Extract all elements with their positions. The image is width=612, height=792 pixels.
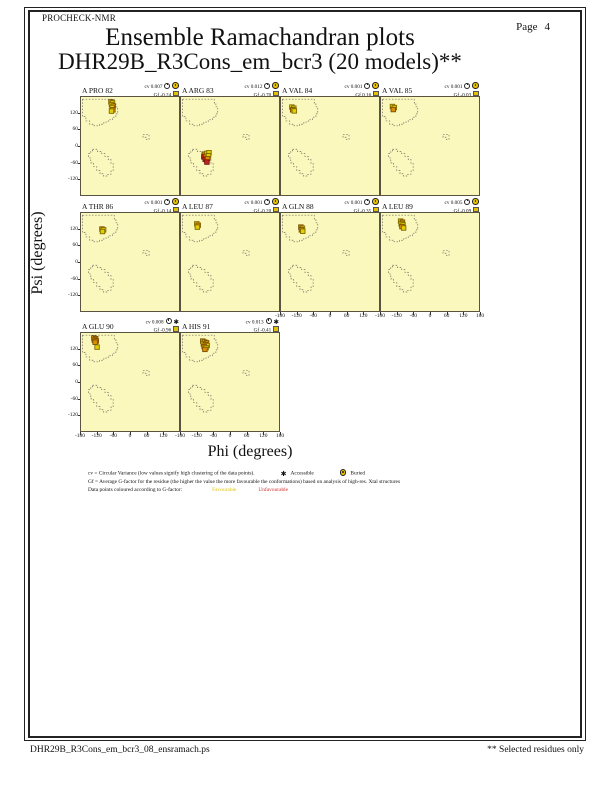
legend-colour-text: Data points coloured according to G-fact… [88, 487, 182, 493]
residue-label: A GLU 90 [82, 322, 114, 331]
dial-icon [364, 199, 370, 205]
plot-area [80, 96, 180, 196]
y-tick-label: 60 [62, 242, 78, 248]
ramachandran-plot: A VAL 84 cv 0.001 Gf 0.16 [280, 82, 380, 196]
gfactor-square-icon [273, 326, 279, 332]
cv-stat: cv 0.001 [245, 198, 279, 207]
accessibility-icon [274, 320, 279, 325]
cv-stat: cv 0.001 [345, 198, 379, 207]
y-tick-label: -60 [62, 276, 78, 282]
y-tick-label: 120 [62, 110, 78, 116]
plot-header: A GLN 88 cv 0.001 Gf -0.35 [280, 198, 380, 212]
dial-icon [164, 199, 170, 205]
ramachandran-plot: A LEU 89 cv 0.005 Gf -0.09 -180-120-6006… [380, 198, 480, 312]
legend-unfavourable-label: Unfavourable [258, 487, 288, 493]
residue-label: A ARG 83 [182, 86, 214, 95]
y-tick-label: -120 [62, 292, 78, 298]
residue-label: A LEU 87 [182, 202, 213, 211]
app-name: PROCHECK-NMR [42, 13, 116, 23]
residue-label: A PRO 82 [82, 86, 113, 95]
ramachandran-plot: A HIS 91 cv 0.013 Gf -0.41 -180-120-6006… [180, 318, 280, 432]
data-point [205, 160, 210, 165]
accessibility-icon [172, 82, 179, 89]
legend-favourable-label: Favourable [212, 487, 236, 493]
plot-header: A VAL 85 cv 0.001 Gf -0.03 [380, 82, 480, 96]
residue-label: A HIS 91 [182, 322, 210, 331]
plot-header: A PRO 82 cv 0.007 Gf -0.24 [80, 82, 180, 96]
y-tick-label: 120 [62, 346, 78, 352]
plot-area [180, 212, 280, 312]
ramachandran-plot: A PRO 82 cv 0.007 Gf -0.24 120600-60-120 [80, 82, 180, 196]
legend: cv = Circular Variance (low values signi… [88, 469, 508, 494]
legend-buried-label: Buried [350, 471, 365, 477]
y-tick-mark [78, 129, 81, 130]
residue-label: A LEU 89 [382, 202, 413, 211]
data-point [109, 109, 114, 114]
residue-label: A VAL 84 [282, 86, 312, 95]
y-tick-mark [78, 163, 81, 164]
accessibility-icon [472, 198, 479, 205]
dial-icon [464, 83, 470, 89]
plot-area [180, 332, 280, 432]
plot-area [80, 332, 180, 432]
x-axis-label: Phi (degrees) [208, 443, 293, 461]
accessibility-icon [174, 320, 179, 325]
data-point [292, 109, 297, 114]
y-tick-mark [78, 295, 81, 296]
ramachandran-plot: A VAL 85 cv 0.001 Gf -0.03 [380, 82, 480, 196]
plot-header: A GLU 90 cv 0.008 Gf -0.96 [80, 318, 180, 332]
gfactor-square-icon [173, 326, 179, 332]
x-tick-mark [197, 432, 198, 435]
cv-stat: cv 0.007 [145, 82, 179, 91]
y-tick-label: 0 [62, 143, 78, 149]
buried-circle-icon [340, 469, 347, 476]
x-tick-mark [247, 432, 248, 435]
y-tick-label: 60 [62, 126, 78, 132]
dial-icon [166, 318, 172, 324]
y-tick-mark [78, 415, 81, 416]
accessibility-icon [472, 82, 479, 89]
legend-accessible-label: Accessible [290, 471, 313, 477]
data-point [391, 107, 396, 112]
x-tick-mark [280, 312, 281, 315]
y-tick-label: 0 [62, 259, 78, 265]
dial-icon [264, 83, 270, 89]
page-number: Page4 [516, 21, 550, 33]
footer-note: ** Selected residues only [487, 745, 584, 755]
y-tick-mark [78, 349, 81, 350]
cv-stat: cv 0.012 [245, 82, 279, 91]
plot-header: A THR 86 cv 0.001 Gf -0.14 [80, 198, 180, 212]
x-tick-mark [147, 432, 148, 435]
x-tick-mark [80, 432, 81, 435]
x-tick-mark [347, 312, 348, 315]
x-tick-mark [163, 432, 164, 435]
plot-area [80, 212, 180, 312]
y-tick-label: -60 [62, 160, 78, 166]
ramachandran-plot: A LEU 87 cv 0.001 Gf -0.20 [180, 198, 280, 312]
y-tick-mark [78, 146, 81, 147]
legend-cv-text: cv = Circular Variance (low values signi… [88, 471, 255, 477]
x-tick-mark [97, 432, 98, 435]
x-tick-mark [130, 432, 131, 435]
dial-icon [264, 199, 270, 205]
data-point [401, 226, 406, 231]
x-tick-mark [413, 312, 414, 315]
x-tick-mark [113, 432, 114, 435]
plot-area [380, 96, 480, 196]
footer-filename: DHR29B_R3Cons_em_bcr3_08_ensramach.ps [30, 745, 210, 755]
residue-label: A THR 86 [82, 202, 113, 211]
x-tick-mark [263, 432, 264, 435]
x-tick-mark [447, 312, 448, 315]
y-tick-mark [78, 113, 81, 114]
x-tick-mark [280, 432, 281, 435]
dial-icon [464, 199, 470, 205]
cv-stat: cv 0.001 [445, 82, 479, 91]
cv-stat: cv 0.008 [146, 318, 179, 326]
y-tick-label: 60 [62, 362, 78, 368]
y-tick-mark [78, 179, 81, 180]
accessibility-icon [272, 198, 279, 205]
y-tick-mark [78, 262, 81, 263]
data-point [93, 340, 98, 345]
legend-gf-row: Gf = Average G-factor for the residue (t… [88, 478, 508, 486]
residue-label: A VAL 85 [382, 86, 412, 95]
x-tick-mark [313, 312, 314, 315]
y-tick-label: 120 [62, 226, 78, 232]
y-tick-mark [78, 279, 81, 280]
accessibility-icon [372, 82, 379, 89]
x-tick-mark [213, 432, 214, 435]
x-tick-mark [230, 432, 231, 435]
cv-stat: cv 0.005 [445, 198, 479, 207]
plot-area [380, 212, 480, 312]
data-point [301, 229, 306, 234]
x-tick-mark [363, 312, 364, 315]
ramachandran-plot: A GLN 88 cv 0.001 Gf -0.35 -180-120-6006… [280, 198, 380, 312]
residue-label: A GLN 88 [282, 202, 314, 211]
dial-icon [364, 83, 370, 89]
y-tick-mark [78, 365, 81, 366]
y-tick-label: -120 [62, 176, 78, 182]
data-point [100, 229, 105, 234]
plot-area [180, 96, 280, 196]
legend-colour-row: Data points coloured according to G-fact… [88, 486, 508, 494]
ramachandran-plot: A ARG 83 cv 0.012 Gf -0.70 [180, 82, 280, 196]
ramachandran-plot: A GLU 90 cv 0.008 Gf -0.96 120600-60-120… [80, 318, 180, 432]
plot-header: A HIS 91 cv 0.013 Gf -0.41 [180, 318, 280, 332]
plot-header: A ARG 83 cv 0.012 Gf -0.70 [180, 82, 280, 96]
dial-icon [266, 318, 272, 324]
dial-icon [164, 83, 170, 89]
y-tick-mark [78, 245, 81, 246]
page-subtitle: DHR29B_R3Cons_em_bcr3 (20 models)** [0, 49, 520, 75]
y-tick-mark [78, 229, 81, 230]
x-tick-mark [180, 432, 181, 435]
legend-cv-row: cv = Circular Variance (low values signi… [88, 469, 508, 478]
accessibility-icon [172, 198, 179, 205]
y-tick-label: -120 [62, 412, 78, 418]
plot-header: A VAL 84 cv 0.001 Gf 0.16 [280, 82, 380, 96]
x-tick-mark [397, 312, 398, 315]
y-axis-label: Psi (degrees) [29, 211, 47, 294]
accessibility-icon [272, 82, 279, 89]
x-tick-mark [480, 312, 481, 315]
page: PROCHECK-NMR Page4 Ensemble Ramachandran… [0, 0, 612, 792]
cv-stat: cv 0.013 [246, 318, 279, 326]
x-tick-mark [330, 312, 331, 315]
data-point [203, 347, 208, 352]
y-tick-mark [78, 399, 81, 400]
data-point [95, 345, 100, 350]
y-tick-mark [78, 382, 81, 383]
data-point [195, 225, 200, 230]
y-tick-label: 0 [62, 379, 78, 385]
y-tick-label: -60 [62, 396, 78, 402]
ramachandran-plot: A THR 86 cv 0.001 Gf -0.14 120600-60-120 [80, 198, 180, 312]
page-title: Ensemble Ramachandran plots [0, 24, 520, 52]
x-tick-mark [380, 312, 381, 315]
cv-stat: cv 0.001 [345, 82, 379, 91]
x-tick-mark [297, 312, 298, 315]
x-tick-mark [430, 312, 431, 315]
accessible-star-icon [281, 472, 287, 477]
x-tick-mark [463, 312, 464, 315]
plot-header: A LEU 89 cv 0.005 Gf -0.09 [380, 198, 480, 212]
page-number-value: 4 [545, 21, 551, 33]
accessibility-icon [372, 198, 379, 205]
plot-area [280, 96, 380, 196]
plot-header: A LEU 87 cv 0.001 Gf -0.20 [180, 198, 280, 212]
plot-area [280, 212, 380, 312]
cv-stat: cv 0.001 [145, 198, 179, 207]
